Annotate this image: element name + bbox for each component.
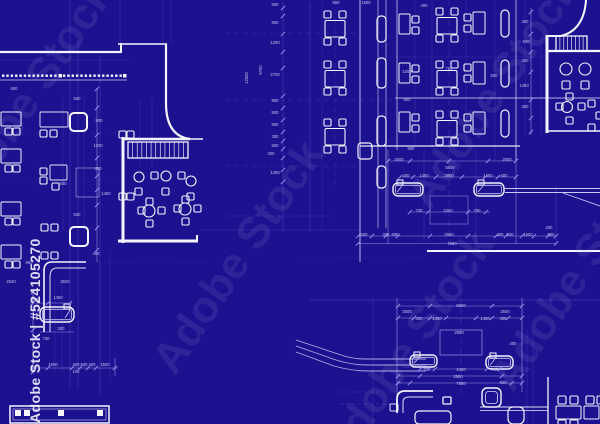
dimension-label: 500 xyxy=(60,181,68,186)
dimension-label: 400 xyxy=(73,362,81,367)
dimension-label: 7580 xyxy=(456,381,466,386)
blueprint-drawing: 5005009001200400500145050040065025402500… xyxy=(0,0,600,424)
dotted-band-marker xyxy=(85,75,87,77)
dotted-band-marker xyxy=(89,75,91,77)
dimension-label: 2540 xyxy=(6,279,16,284)
dotted-band-marker xyxy=(2,75,4,77)
dimension-label: 100 xyxy=(73,369,81,374)
dotted-band-marker xyxy=(80,75,82,77)
filled-marker xyxy=(15,410,21,416)
dimension-label: 730 xyxy=(424,367,432,372)
dimension-label: 1500 xyxy=(48,362,58,367)
dimension-label: 400 xyxy=(421,3,429,8)
dotted-band-marker xyxy=(106,75,108,77)
dimension-label: 600 xyxy=(392,232,400,237)
stock-id-watermark: Adobe Stock | #524105270 xyxy=(27,238,43,423)
dimension-label: 900 xyxy=(272,98,280,103)
dimension-label: 1000 xyxy=(402,69,412,74)
dimension-label: 400 xyxy=(93,251,101,256)
dimension-label: 900 xyxy=(272,20,280,25)
dimension-label: 2500 xyxy=(502,157,512,162)
dimension-label: 1500 xyxy=(100,362,110,367)
dimension-label: 2400 xyxy=(443,208,453,213)
dimension-label: 400 xyxy=(268,151,276,156)
dimension-label: 400 xyxy=(500,316,508,321)
dimension-label: 750 xyxy=(446,66,454,71)
blueprint-stock-image: 5005009001200400500145050040065025402500… xyxy=(0,0,600,424)
dimension-label: 2400 xyxy=(456,367,466,372)
dimension-label: 300 xyxy=(58,326,66,331)
dimension-label: 2560 xyxy=(453,374,463,379)
dotted-band-marker xyxy=(124,75,126,77)
dimension-label: 800 xyxy=(408,146,416,151)
dimension-label: 400 xyxy=(383,232,391,237)
dimension-label: 600 xyxy=(507,232,515,237)
dimension-label: 300 xyxy=(522,104,530,109)
dimension-label: 900 xyxy=(272,122,280,127)
dotted-band-marker xyxy=(76,75,78,77)
dimension-label: 500 xyxy=(272,2,280,7)
dimension-label: 500 xyxy=(272,143,280,148)
dimension-label: 400 xyxy=(501,173,509,178)
dimension-label: 400 xyxy=(497,232,505,237)
filled-marker xyxy=(58,410,64,416)
dimension-label: 2500 xyxy=(394,157,404,162)
dimension-label: 730 xyxy=(43,336,51,341)
dotted-band-marker xyxy=(93,75,95,77)
dimension-label: 500 xyxy=(333,0,341,5)
dimension-label: 6700 xyxy=(258,65,263,75)
dimension-label: 500 xyxy=(361,232,369,237)
dimension-label: 1200 xyxy=(270,40,280,45)
dimension-label: 400 xyxy=(95,166,103,171)
dimension-label: 2700 xyxy=(270,72,280,77)
dimension-label: 600 xyxy=(548,232,556,237)
dimension-label: 1450 xyxy=(480,316,490,321)
dotted-band-marker xyxy=(6,75,8,77)
dimension-label: 900 xyxy=(404,97,412,102)
dimension-label: 500 xyxy=(272,110,280,115)
dimension-label: 2500 xyxy=(60,279,70,284)
dimension-label: 300 xyxy=(272,134,280,139)
dimension-label: 1450 xyxy=(101,191,111,196)
dotted-band-marker xyxy=(119,75,121,77)
dimension-label: 730 xyxy=(416,208,424,213)
dimension-label: 400 xyxy=(89,362,97,367)
dimension-label: 1500 xyxy=(523,232,533,237)
dimension-label: 1500 xyxy=(361,0,371,5)
dotted-band-marker xyxy=(111,75,113,77)
dimension-label: 500 xyxy=(74,96,82,101)
dimension-label: 1200 xyxy=(93,143,103,148)
dimension-label: 1450 xyxy=(483,173,493,178)
dimension-label: 600 xyxy=(81,362,89,367)
dimension-label: 1450 xyxy=(53,295,63,300)
filled-marker xyxy=(97,410,103,416)
dimension-label: 2900 xyxy=(454,330,464,335)
dimension-label: 790 xyxy=(474,208,482,213)
dotted-band-marker xyxy=(102,75,104,77)
dimension-label: 500 xyxy=(74,212,82,217)
dimension-label: 2500 xyxy=(500,309,510,314)
dimension-label: 200 xyxy=(546,225,554,230)
dimension-label: 12500 xyxy=(244,72,249,84)
dimension-label: 900 xyxy=(96,118,104,123)
dotted-band-marker xyxy=(115,75,117,77)
dotted-band-marker xyxy=(98,75,100,77)
